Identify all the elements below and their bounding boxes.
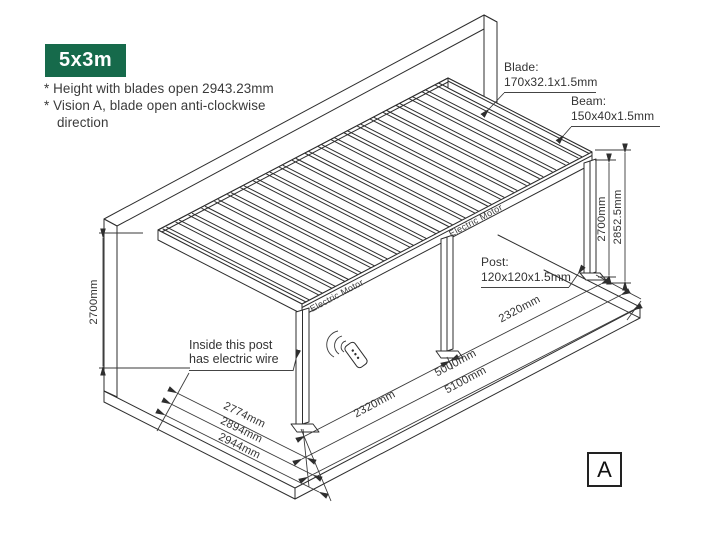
note-height: * Height with blades open 2943.23mm	[44, 80, 274, 97]
size-badge: 5x3m	[45, 44, 126, 77]
dim-front-span-right: 2320mm	[497, 293, 543, 325]
notes-block: * Height with blades open 2943.23mm * Vi…	[44, 80, 274, 131]
electric-wire-note-line2: has electric wire	[189, 352, 293, 366]
electric-wire-note-line1: Inside this post	[189, 338, 293, 352]
beam-callout: Beam: 150x40x1.5mm	[571, 94, 660, 127]
post-callout: Post: 120x120x1.5mm	[481, 255, 569, 288]
blade-callout: Blade: 170x32.1x1.5mm	[504, 60, 596, 93]
post-callout-spec: 120x120x1.5mm	[481, 270, 569, 285]
remote-control-icon	[327, 331, 369, 369]
pergola-dimension-diagram: Electric Motor Electric Motor	[0, 0, 720, 554]
dim-right-post-height: 2700mm	[596, 196, 608, 241]
dim-front-span-left: 2320mm	[352, 388, 398, 420]
blade-callout-spec: 170x32.1x1.5mm	[504, 75, 596, 90]
beam-callout-spec: 150x40x1.5mm	[571, 109, 660, 124]
wireless-waves-icon	[327, 331, 346, 357]
note-vision: * Vision A, blade open anti-clockwise	[44, 97, 274, 114]
post-callout-title: Post:	[481, 255, 569, 270]
vision-a-marker: A	[587, 452, 622, 487]
dim-right-total-height: 2852.5mm	[612, 190, 624, 245]
electric-wire-note: Inside this post has electric wire	[189, 338, 293, 371]
beam-callout-title: Beam:	[571, 94, 660, 109]
note-vision-cont: direction	[44, 114, 274, 131]
blade-callout-title: Blade:	[504, 60, 596, 75]
left-wall-end	[104, 219, 117, 397]
dim-left-height: 2700mm	[88, 279, 100, 324]
